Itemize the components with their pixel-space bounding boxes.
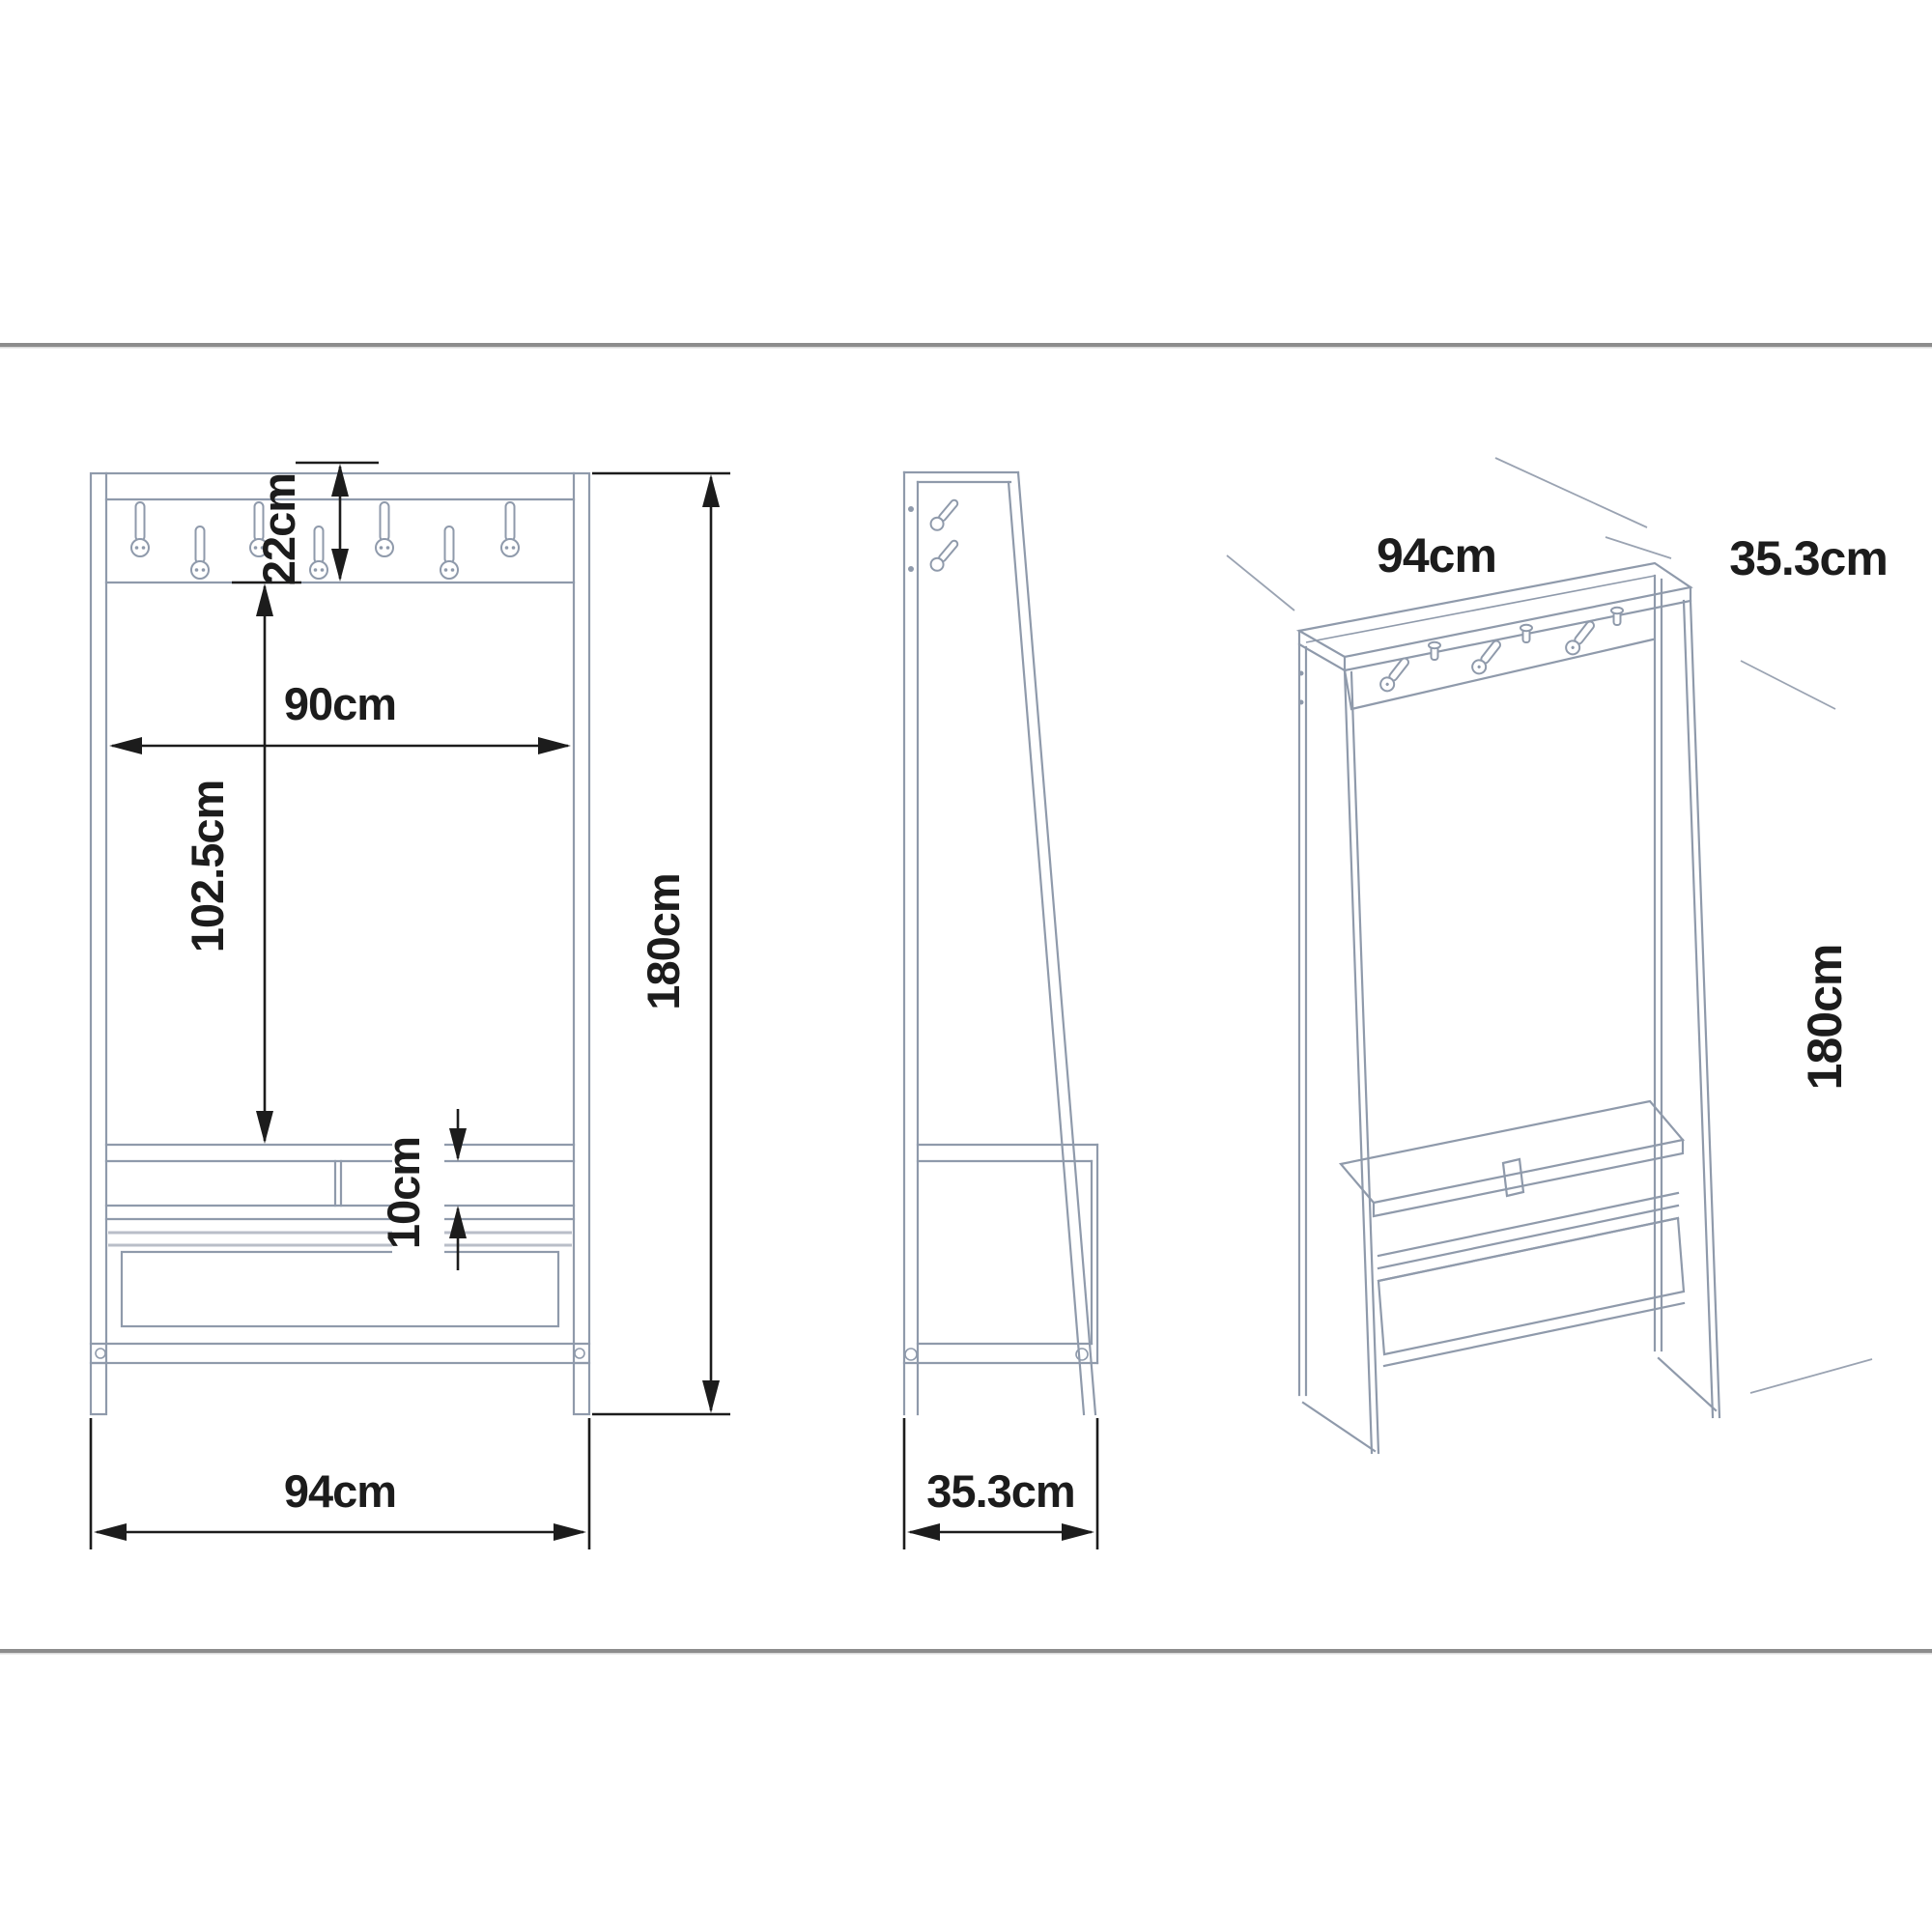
coat-hook-peg-icon bbox=[1611, 608, 1623, 625]
dim-shelf-gap: 10cm bbox=[378, 1109, 458, 1280]
side-frame bbox=[904, 472, 1097, 1414]
coat-hook-iso-icon bbox=[1563, 618, 1598, 657]
dim-inner-width: 90cm bbox=[112, 678, 568, 746]
coat-hook-side-icon bbox=[928, 497, 961, 532]
coat-hook-peg-icon bbox=[1520, 625, 1532, 642]
coat-hook-peg-icon bbox=[1429, 642, 1440, 660]
dim-label-22cm: 22cm bbox=[253, 473, 304, 585]
hall-tree-dimension-drawing: 22cm 102.5cm 90cm 10cm 180cm bbox=[0, 0, 1932, 1932]
dim-label-35-3cm: 35.3cm bbox=[926, 1465, 1074, 1517]
side-view: 35.3cm bbox=[904, 472, 1097, 1549]
coat-hook-icon bbox=[191, 526, 209, 579]
dim-depth: 35.3cm bbox=[904, 1418, 1097, 1549]
dim-label-10cm: 10cm bbox=[378, 1137, 429, 1249]
iso-frame bbox=[1299, 563, 1720, 1453]
dim-label-94cm: 94cm bbox=[284, 1465, 396, 1517]
coat-hook-icon bbox=[131, 502, 149, 556]
coat-hook-icon bbox=[376, 502, 393, 556]
dim-label-180cm: 180cm bbox=[638, 873, 689, 1009]
iso-label-width: 94cm bbox=[1377, 528, 1496, 582]
top-rule bbox=[0, 343, 1932, 349]
coat-hook-icon bbox=[440, 526, 458, 579]
front-frame bbox=[91, 473, 589, 1414]
iso-label-height: 180cm bbox=[1798, 945, 1852, 1091]
iso-label-depth: 35.3cm bbox=[1729, 531, 1888, 585]
dim-total-width: 94cm bbox=[91, 1418, 589, 1549]
iso-dim-leaders bbox=[1227, 458, 1872, 1393]
bottom-rule bbox=[0, 1649, 1932, 1655]
dim-label-90cm: 90cm bbox=[284, 678, 396, 729]
dim-hook-to-bench: 102.5cm bbox=[182, 582, 301, 1141]
technical-drawing-page: 22cm 102.5cm 90cm 10cm 180cm bbox=[0, 0, 1932, 1932]
isometric-view: 94cm 35.3cm 180cm bbox=[1227, 458, 1888, 1453]
dim-total-height: 180cm bbox=[592, 473, 730, 1414]
coat-hook-icon bbox=[310, 526, 327, 579]
dim-label-102-5cm: 102.5cm bbox=[182, 781, 233, 953]
coat-hook-icon bbox=[501, 502, 519, 556]
front-view: 22cm 102.5cm 90cm 10cm 180cm bbox=[91, 463, 730, 1549]
coat-hook-side-icon bbox=[928, 537, 961, 573]
